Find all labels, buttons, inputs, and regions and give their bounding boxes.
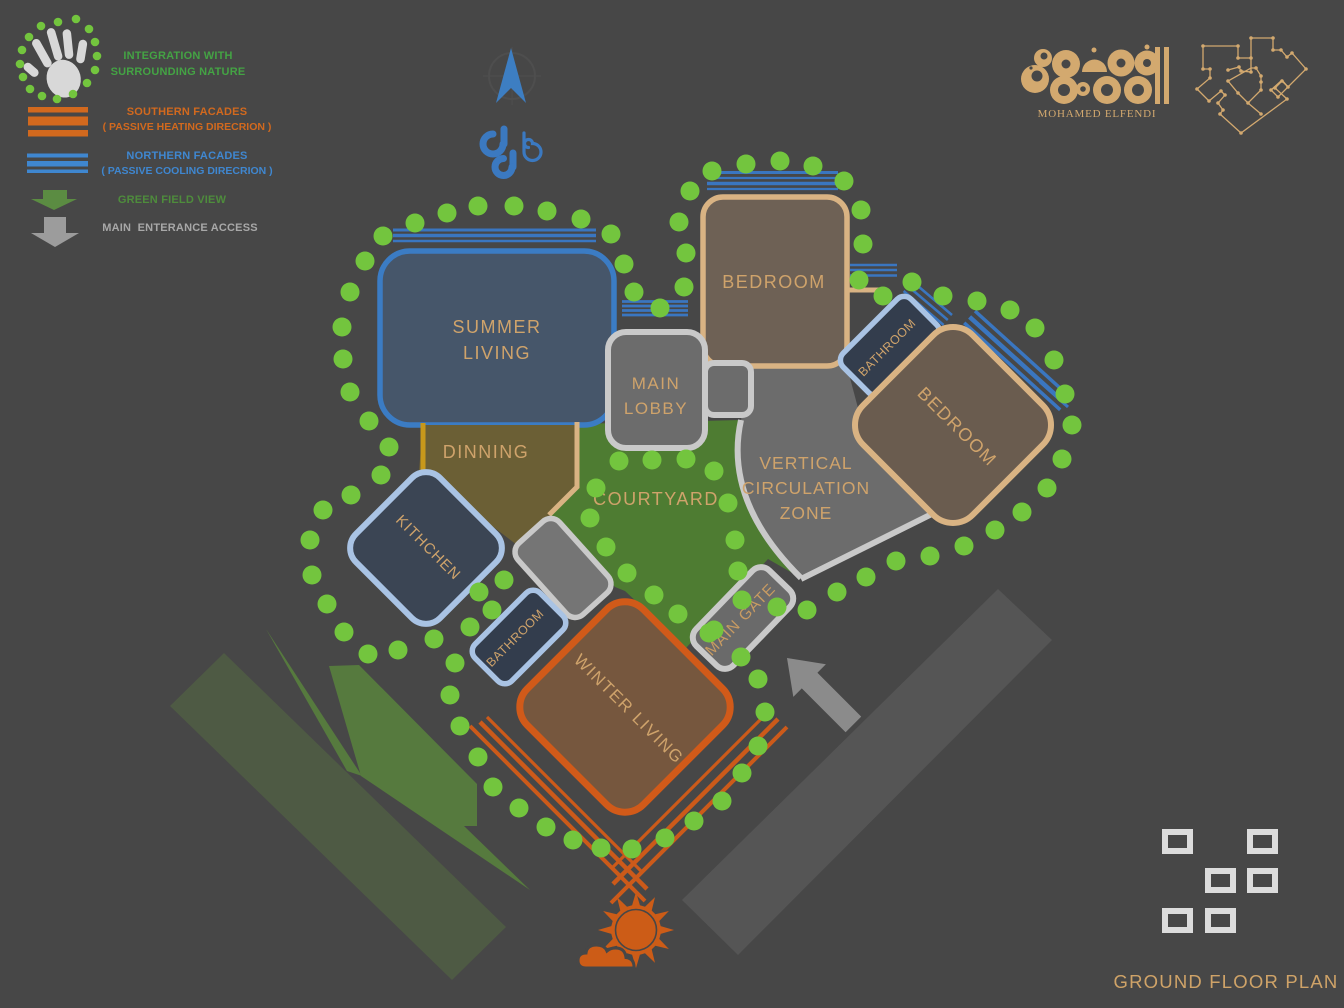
svg-text:MAIN ENTERANCE ACCESS: MAIN ENTERANCE ACCESS — [102, 222, 258, 234]
svg-text:BEDROOM: BEDROOM — [722, 272, 826, 292]
svg-text:ZONE: ZONE — [780, 503, 833, 523]
svg-text:MOHAMED ELFENDI: MOHAMED ELFENDI — [1038, 108, 1157, 120]
svg-text:SURROUNDING NATURE: SURROUNDING NATURE — [111, 66, 246, 78]
svg-text:LOBBY: LOBBY — [624, 399, 688, 418]
svg-text:SOUTHERN FACADES: SOUTHERN FACADES — [127, 106, 248, 118]
svg-text:COURTYARD: COURTYARD — [593, 489, 719, 509]
svg-text:NORTHERN FACADES: NORTHERN FACADES — [126, 150, 247, 162]
svg-text:LIVING: LIVING — [463, 343, 531, 363]
svg-text:( PASSIVE HEATING DIRECRION ): ( PASSIVE HEATING DIRECRION ) — [103, 121, 272, 133]
svg-text:CIRCULATION: CIRCULATION — [742, 478, 870, 498]
svg-text:SUMMER: SUMMER — [453, 317, 542, 337]
svg-text:DINNING: DINNING — [443, 442, 530, 462]
svg-text:( PASSIVE COOLING DIRECRION ): ( PASSIVE COOLING DIRECRION ) — [101, 165, 272, 177]
svg-text:GROUND FLOOR PLAN: GROUND FLOOR PLAN — [1114, 971, 1339, 992]
svg-text:VERTICAL: VERTICAL — [759, 453, 852, 473]
svg-text:GREEN FIELD VIEW: GREEN FIELD VIEW — [118, 194, 227, 206]
svg-text:MAIN: MAIN — [632, 374, 681, 393]
svg-text:INTEGRATION WITH: INTEGRATION WITH — [123, 50, 232, 62]
